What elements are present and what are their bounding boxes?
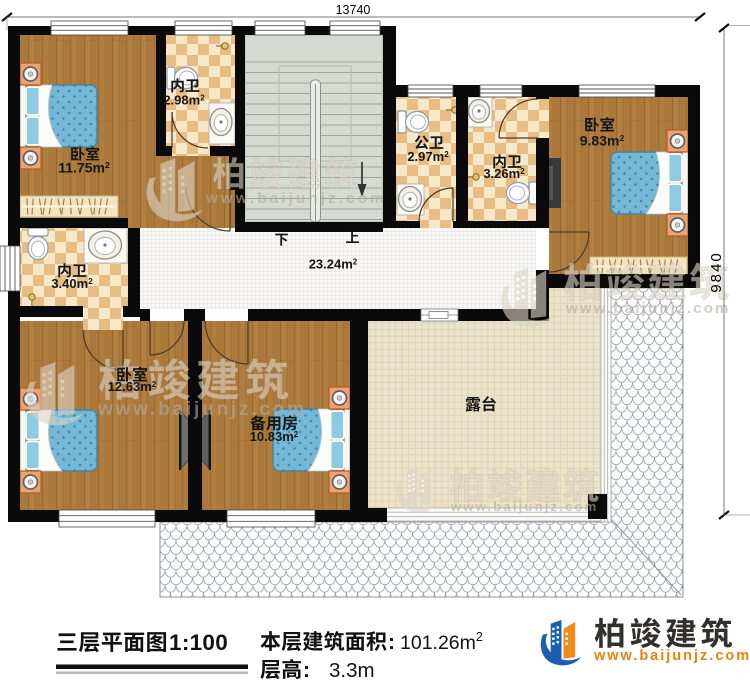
svg-text:3.3m: 3.3m bbox=[329, 659, 375, 681]
svg-text::: : bbox=[388, 631, 395, 654]
svg-text:10.83m2: 10.83m2 bbox=[250, 429, 299, 444]
svg-text:9.83m2: 9.83m2 bbox=[580, 133, 625, 149]
svg-text:3.40m2: 3.40m2 bbox=[51, 276, 93, 291]
svg-text:3.26m2: 3.26m2 bbox=[483, 166, 525, 181]
svg-text:www.baijunjz.com: www.baijunjz.com bbox=[205, 190, 387, 207]
svg-text:www.baijunjz.com: www.baijunjz.com bbox=[565, 300, 731, 317]
svg-text:www.baijunjz.com: www.baijunjz.com bbox=[593, 648, 750, 664]
svg-text:2.97m2: 2.97m2 bbox=[407, 149, 449, 164]
svg-text:101.26m2: 101.26m2 bbox=[400, 630, 483, 654]
svg-text:13740: 13740 bbox=[336, 3, 371, 17]
svg-text:1:100: 1:100 bbox=[169, 630, 228, 655]
svg-text:23.24m2: 23.24m2 bbox=[309, 257, 358, 272]
svg-text:2.98m2: 2.98m2 bbox=[163, 93, 205, 108]
svg-text:11.75m2: 11.75m2 bbox=[58, 160, 110, 176]
svg-text:9840: 9840 bbox=[708, 251, 725, 292]
svg-text::: : bbox=[303, 659, 310, 681]
svg-text:www.baijunjz.com: www.baijunjz.com bbox=[450, 499, 598, 514]
svg-text:12.63m2: 12.63m2 bbox=[108, 379, 157, 394]
